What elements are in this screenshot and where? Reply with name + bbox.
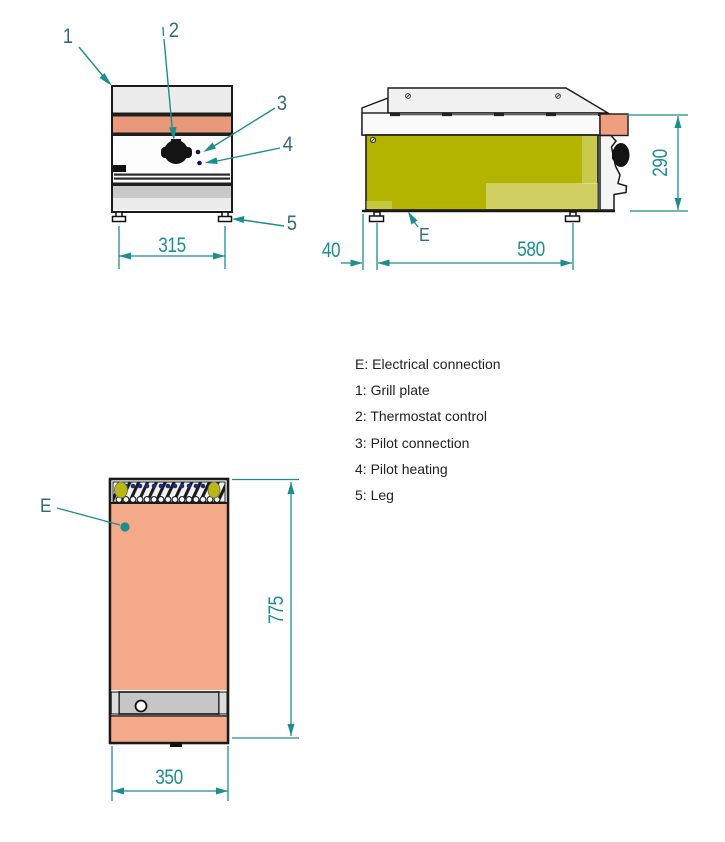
dimension-290: 290 — [649, 144, 673, 182]
callout-4: 4 — [283, 133, 293, 157]
top-front-band — [111, 717, 227, 742]
pilot-heating-dot — [197, 161, 202, 166]
leader-1 — [79, 47, 103, 76]
callout-1: 1 — [63, 25, 73, 49]
panel-screw — [370, 137, 375, 142]
side-upper-band — [362, 113, 600, 135]
pilot-connection-dot — [196, 150, 201, 155]
front-splash-guard — [112, 86, 232, 113]
leader-5 — [243, 220, 284, 226]
side-splash-guard — [388, 88, 608, 113]
top-grill-plate — [111, 504, 227, 690]
legend: E: Electrical connection 1: Grill plate … — [355, 351, 501, 508]
callout-2: 2 — [169, 19, 179, 43]
side-view — [362, 88, 630, 222]
electrical-label-side: E — [419, 225, 430, 246]
leader-2-tick — [163, 27, 164, 36]
legend-item-leg: 5: Leg — [355, 482, 501, 508]
front-badge — [112, 165, 126, 172]
dimension-775: 775 — [265, 591, 289, 629]
front-legs — [113, 212, 232, 222]
electrical-label-top: E — [40, 496, 51, 518]
front-top-rail — [112, 113, 232, 117]
callout-5: 5 — [287, 212, 297, 236]
top-view — [110, 479, 228, 747]
hatch-scallops — [116, 497, 220, 503]
dimension-350: 350 — [150, 766, 188, 790]
dimension-315: 315 — [153, 234, 191, 258]
legend-item-electrical: E: Electrical connection — [355, 351, 501, 377]
callout-3: 3 — [277, 92, 287, 116]
legend-item-pilot-connection: 3: Pilot connection — [355, 430, 501, 456]
legend-item-thermostat: 2: Thermostat control — [355, 403, 501, 429]
technical-drawing-page: 1 2 3 4 5 315 40 580 290 775 350 E E E: … — [0, 0, 725, 842]
top-tab — [170, 742, 182, 747]
knob-hole — [136, 701, 147, 712]
side-grill-plate-edge — [600, 114, 628, 136]
legend-item-grill-plate: 1: Grill plate — [355, 377, 501, 403]
top-control-strip — [119, 692, 219, 714]
front-view — [112, 86, 232, 222]
side-legs — [370, 212, 580, 222]
legend-item-pilot-heating: 4: Pilot heating — [355, 456, 501, 482]
dimension-40: 40 — [319, 239, 344, 263]
dimension-580: 580 — [512, 238, 550, 262]
